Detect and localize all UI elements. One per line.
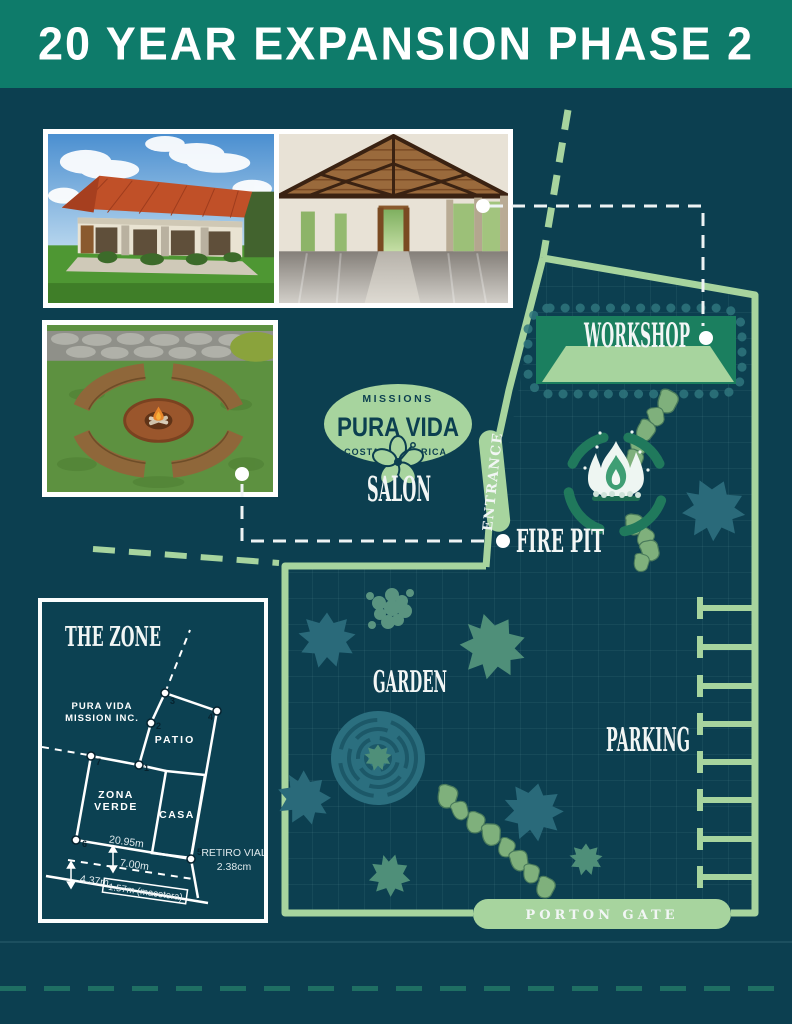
zone-measure-157: 1.57m (macetera)	[107, 882, 183, 903]
bottom-dashed-rule	[0, 986, 792, 991]
zone-title: THE ZONE	[65, 622, 161, 653]
zone-casa-label: CASA	[159, 809, 195, 821]
porton-gate-label: PORTON GATE	[525, 908, 678, 923]
salon-label: SALON	[367, 469, 431, 510]
entrance-road: ENTRANCE	[478, 258, 543, 567]
zone-retiro-line2: 2.38cm	[217, 861, 252, 873]
zone-measure-700: 7.00m	[119, 857, 150, 873]
zone-owner-line1: PURA VIDA	[72, 701, 133, 712]
parking-lot	[700, 597, 752, 888]
bottom-rule	[0, 941, 792, 943]
zone-zona-line2: VERDE	[94, 801, 138, 813]
fire-pit-icon	[569, 430, 661, 531]
firepit-photo-dot	[235, 467, 249, 481]
firepit-map-dot	[496, 534, 510, 548]
garden-label: GARDEN	[373, 665, 447, 700]
workshop-building: WORKSHOP	[528, 308, 742, 394]
workshop-label: WORKSHOP	[584, 316, 690, 356]
zone-zona-line1: ZONA	[98, 789, 134, 801]
zone-patio-label: PATIO	[155, 734, 196, 746]
zone-measure-437: 4.37m	[79, 873, 110, 889]
boundary-dashed-top	[543, 110, 568, 258]
zone-owner-line2: MISSION INC.	[65, 713, 139, 724]
zone-point-1: 1	[144, 763, 149, 773]
zone-point-4: 4	[208, 712, 213, 722]
zone-retiro-line1: RETIRO VIAL	[201, 847, 264, 859]
fire-pit-label: FIRE PIT	[516, 522, 604, 560]
poster-page: 20 YEAR EXPANSION PHASE 2	[0, 0, 792, 1024]
zone-map: THE ZONE	[42, 602, 264, 919]
swirl-bush	[331, 711, 425, 805]
zone-point-2: 2	[156, 721, 161, 731]
parking-label: PARKING	[606, 720, 690, 759]
logo-missions: MISSIONS	[362, 393, 433, 405]
logo-rica: RICA	[421, 447, 447, 457]
salon-photo-dot	[476, 199, 490, 213]
workshop-connector-dot	[699, 331, 713, 345]
zone-point-3: 3	[170, 696, 175, 706]
porton-gate: PORTON GATE	[473, 899, 731, 929]
zone-point-7: 7	[96, 757, 101, 767]
zone-point-6: 6	[82, 839, 87, 849]
boundary-dashed-left	[93, 549, 279, 563]
cluster-bush	[366, 588, 414, 629]
zone-inset: THE ZONE	[38, 598, 268, 923]
